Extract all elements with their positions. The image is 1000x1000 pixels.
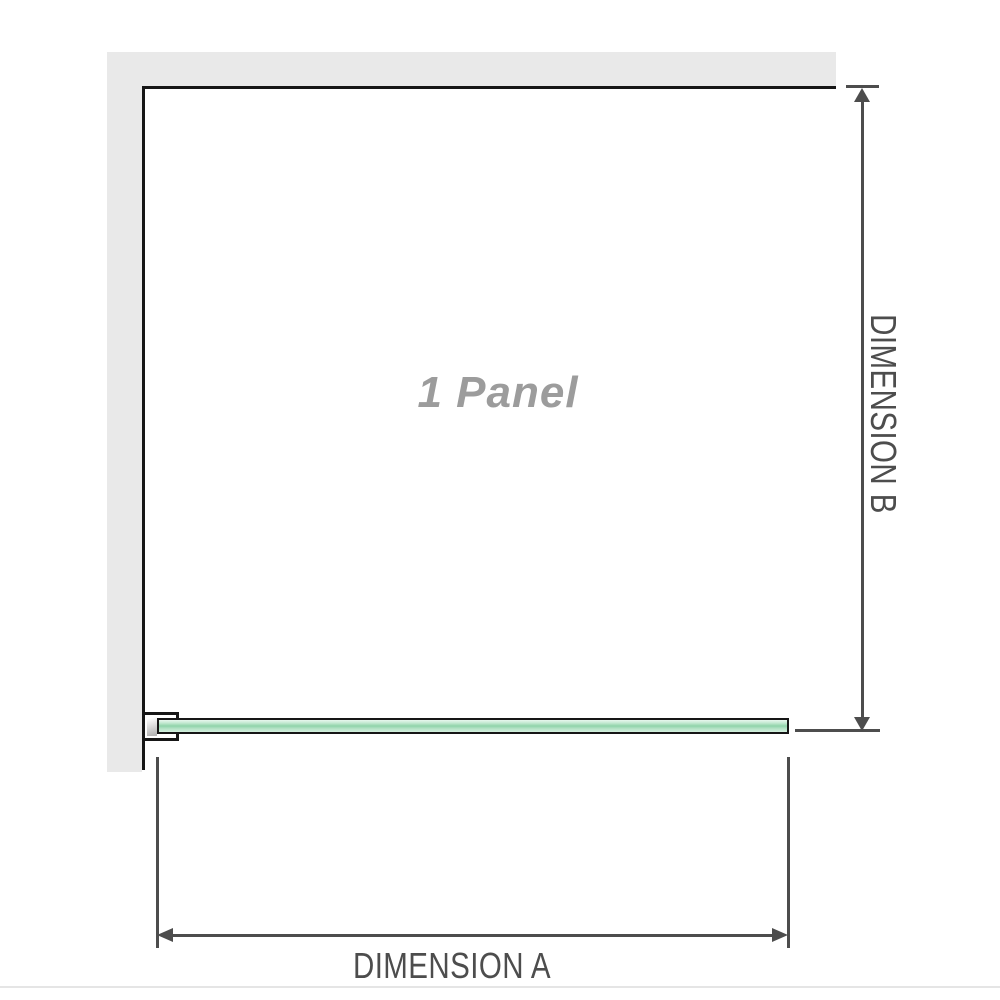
wall-left-strip: [107, 52, 142, 772]
dim-a-label: DIMENSION A: [353, 945, 551, 987]
bracket-pad: [147, 717, 157, 736]
glass-panel-plan-view: [157, 718, 789, 734]
panel-outline-top-edge: [142, 86, 836, 89]
panel-outline-left-edge: [142, 86, 145, 770]
dim-a-right-extension-line: [787, 757, 790, 948]
panel-count-label: 1 Panel: [417, 368, 578, 418]
dim-a-left-extension-line: [156, 757, 159, 948]
dim-a-arrow-right-icon: [772, 928, 788, 942]
dim-b-arrow-down-icon: [854, 717, 870, 731]
dim-a-line: [170, 934, 776, 937]
panel-dimension-diagram: 1 Panel DIMENSION B DIMENSION A: [0, 0, 1000, 1000]
dim-b-label: DIMENSION B: [862, 314, 904, 514]
bottom-divider-line: [0, 986, 1000, 988]
wall-top-strip: [107, 52, 836, 87]
dim-b-arrow-up-icon: [854, 88, 870, 102]
dim-a-arrow-left-icon: [157, 928, 173, 942]
